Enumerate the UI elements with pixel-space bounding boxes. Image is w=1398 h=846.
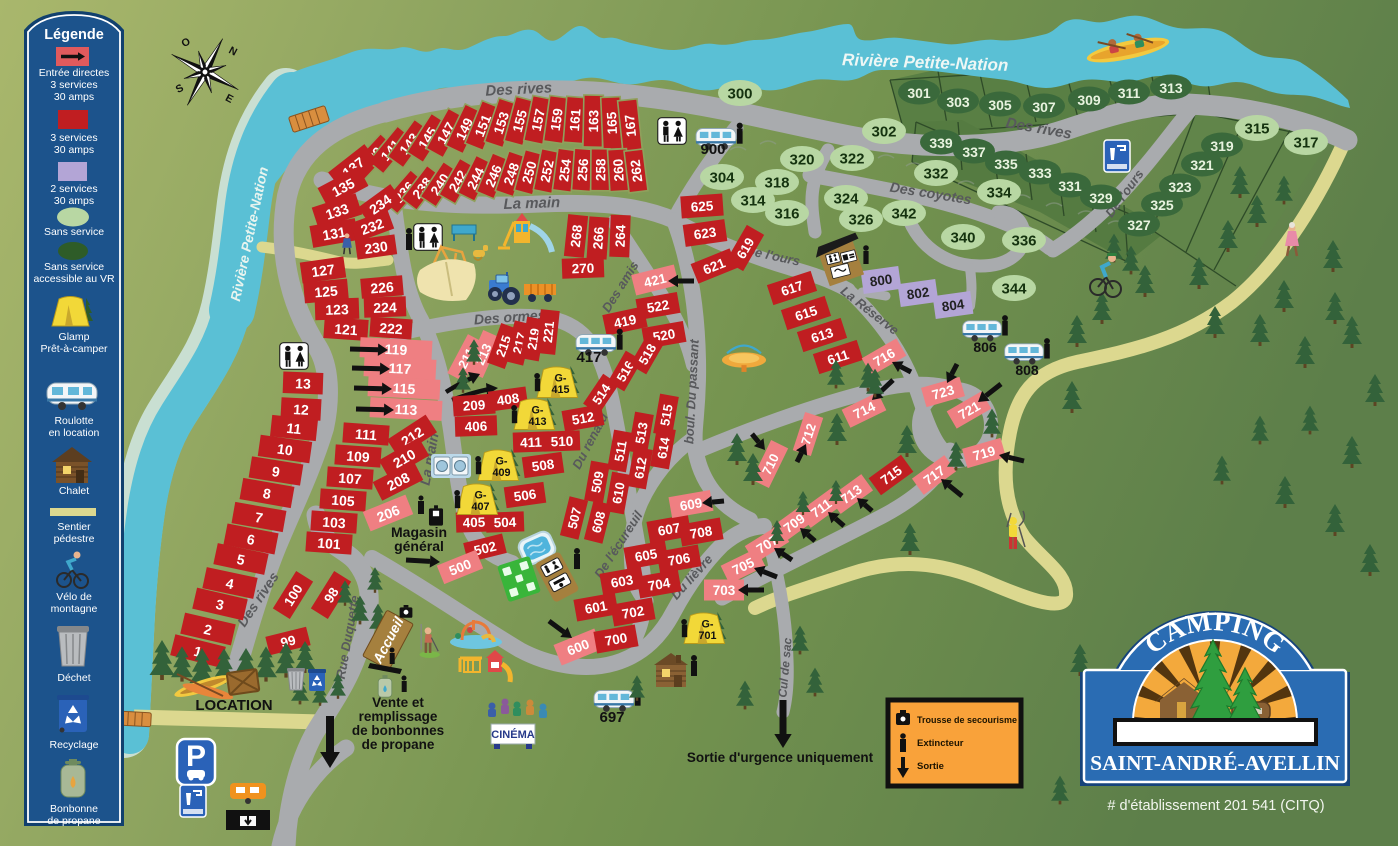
svg-text:322: 322 bbox=[839, 151, 864, 168]
svg-text:Trousse de secourisme: Trousse de secourisme bbox=[917, 715, 1017, 725]
svg-text:2 services: 2 services bbox=[50, 183, 97, 195]
svg-text:30 amps: 30 amps bbox=[54, 195, 94, 207]
svg-text:226: 226 bbox=[370, 278, 395, 296]
svg-text:317: 317 bbox=[1293, 135, 1318, 152]
svg-text:340: 340 bbox=[950, 230, 975, 247]
svg-text:806: 806 bbox=[973, 339, 997, 355]
svg-text:165: 165 bbox=[604, 111, 620, 135]
svg-text:311: 311 bbox=[1118, 85, 1141, 101]
svg-text:802: 802 bbox=[906, 285, 930, 303]
svg-text:G-: G- bbox=[475, 489, 487, 501]
svg-text:30 amps: 30 amps bbox=[54, 91, 94, 103]
svg-text:Glamp: Glamp bbox=[59, 331, 90, 343]
svg-text:13: 13 bbox=[295, 375, 311, 392]
svg-text:266: 266 bbox=[590, 226, 607, 250]
svg-text:302: 302 bbox=[871, 124, 896, 141]
svg-text:508: 508 bbox=[531, 456, 556, 474]
svg-text:Sentier: Sentier bbox=[57, 521, 91, 533]
svg-text:117: 117 bbox=[388, 360, 412, 377]
svg-text:119: 119 bbox=[384, 341, 408, 358]
svg-text:101: 101 bbox=[317, 535, 342, 553]
svg-text:314: 314 bbox=[740, 193, 766, 210]
svg-text:697: 697 bbox=[599, 709, 624, 726]
svg-text:105: 105 bbox=[331, 492, 356, 510]
svg-text:de propane: de propane bbox=[362, 737, 435, 752]
svg-text:209: 209 bbox=[462, 397, 486, 414]
svg-text:accessible au VR: accessible au VR bbox=[33, 273, 115, 285]
svg-text:417: 417 bbox=[576, 349, 601, 366]
svg-text:159: 159 bbox=[548, 107, 566, 131]
svg-text:336: 336 bbox=[1011, 233, 1036, 250]
svg-text:161: 161 bbox=[567, 108, 584, 132]
svg-text:264: 264 bbox=[613, 224, 629, 248]
svg-text:325: 325 bbox=[1150, 197, 1174, 213]
svg-text:313: 313 bbox=[1159, 80, 1183, 96]
svg-text:# d'établissement 201 541 (CIT: # d'établissement 201 541 (CITQ) bbox=[1107, 798, 1324, 814]
svg-text:319: 319 bbox=[1210, 138, 1234, 154]
svg-text:327: 327 bbox=[1127, 217, 1151, 233]
svg-text:pédestre: pédestre bbox=[54, 533, 95, 545]
svg-text:3 services: 3 services bbox=[50, 79, 97, 91]
svg-text:318: 318 bbox=[764, 175, 789, 192]
svg-text:10: 10 bbox=[276, 440, 294, 458]
svg-text:125: 125 bbox=[314, 282, 339, 300]
svg-text:123: 123 bbox=[325, 301, 349, 318]
svg-text:Sans service: Sans service bbox=[44, 261, 104, 273]
svg-text:333: 333 bbox=[1028, 165, 1052, 181]
svg-text:337: 337 bbox=[962, 144, 986, 160]
svg-text:303: 303 bbox=[946, 94, 970, 110]
svg-text:en location: en location bbox=[49, 427, 100, 439]
svg-text:305: 305 bbox=[988, 97, 1012, 113]
svg-text:323: 323 bbox=[1168, 179, 1192, 195]
svg-text:G-: G- bbox=[532, 404, 544, 416]
svg-text:316: 316 bbox=[774, 206, 799, 223]
svg-text:321: 321 bbox=[1190, 157, 1214, 173]
svg-text:415: 415 bbox=[551, 384, 569, 396]
svg-text:Sans service: Sans service bbox=[44, 226, 104, 238]
svg-text:254: 254 bbox=[556, 158, 574, 183]
svg-text:121: 121 bbox=[334, 321, 359, 339]
svg-text:P: P bbox=[186, 740, 206, 773]
svg-text:remplissage: remplissage bbox=[359, 709, 438, 724]
svg-text:256: 256 bbox=[575, 158, 592, 182]
svg-text:300: 300 bbox=[727, 86, 752, 103]
svg-text:107: 107 bbox=[338, 470, 363, 488]
svg-text:406: 406 bbox=[464, 419, 488, 435]
svg-text:Vélo de: Vélo de bbox=[56, 591, 92, 603]
svg-text:CINÉMA: CINÉMA bbox=[491, 728, 534, 741]
svg-text:332: 332 bbox=[923, 166, 948, 183]
svg-text:270: 270 bbox=[571, 261, 594, 277]
svg-text:309: 309 bbox=[1077, 92, 1101, 108]
svg-text:115: 115 bbox=[392, 380, 416, 397]
svg-text:900: 900 bbox=[700, 141, 725, 158]
svg-text:260: 260 bbox=[611, 158, 627, 181]
svg-text:315: 315 bbox=[1244, 121, 1269, 138]
svg-text:G-: G- bbox=[702, 618, 714, 630]
svg-text:307: 307 bbox=[1032, 99, 1056, 115]
svg-text:504: 504 bbox=[493, 515, 517, 531]
svg-text:Prêt-à-camper: Prêt-à-camper bbox=[40, 343, 108, 355]
svg-text:de propane: de propane bbox=[47, 815, 100, 827]
svg-text:405: 405 bbox=[462, 515, 486, 531]
svg-text:331: 331 bbox=[1058, 178, 1082, 194]
svg-text:de bonbonnes: de bonbonnes bbox=[352, 723, 444, 738]
svg-text:127: 127 bbox=[310, 261, 336, 280]
svg-text:167: 167 bbox=[622, 114, 639, 138]
svg-text:409: 409 bbox=[492, 467, 510, 479]
svg-text:12: 12 bbox=[293, 401, 310, 418]
svg-text:701: 701 bbox=[698, 630, 716, 642]
svg-text:163: 163 bbox=[586, 109, 601, 132]
svg-text:262: 262 bbox=[628, 159, 646, 183]
svg-text:411: 411 bbox=[520, 435, 543, 451]
svg-text:230: 230 bbox=[363, 238, 389, 257]
svg-text:808: 808 bbox=[1015, 362, 1039, 378]
svg-text:Déchet: Déchet bbox=[57, 672, 90, 684]
svg-text:30 amps: 30 amps bbox=[54, 144, 94, 156]
svg-text:304: 304 bbox=[709, 170, 735, 187]
svg-text:11: 11 bbox=[286, 420, 303, 437]
svg-text:113: 113 bbox=[394, 401, 418, 418]
svg-text:Bonbonne: Bonbonne bbox=[50, 803, 98, 815]
svg-text:342: 342 bbox=[891, 206, 916, 223]
svg-text:320: 320 bbox=[789, 152, 814, 169]
svg-text:Sortie d'urgence uniquement: Sortie d'urgence uniquement bbox=[687, 750, 874, 765]
svg-text:Recyclage: Recyclage bbox=[49, 739, 98, 751]
svg-text:général: général bbox=[394, 538, 444, 554]
svg-text:301: 301 bbox=[907, 85, 931, 101]
svg-text:G-: G- bbox=[555, 372, 567, 384]
svg-text:Légende: Légende bbox=[44, 27, 104, 43]
svg-text:408: 408 bbox=[496, 390, 521, 408]
svg-text:montagne: montagne bbox=[51, 603, 98, 615]
svg-text:SAINT-ANDRÉ-AVELLIN: SAINT-ANDRÉ-AVELLIN bbox=[1090, 751, 1340, 775]
svg-text:703: 703 bbox=[713, 583, 736, 598]
svg-text:109: 109 bbox=[346, 448, 371, 466]
svg-text:Extincteur: Extincteur bbox=[917, 738, 964, 749]
svg-text:413: 413 bbox=[528, 416, 546, 428]
svg-text:335: 335 bbox=[994, 156, 1018, 172]
svg-text:Chalet: Chalet bbox=[59, 485, 89, 497]
svg-text:407: 407 bbox=[471, 501, 489, 513]
svg-text:224: 224 bbox=[373, 299, 397, 316]
svg-text:258: 258 bbox=[593, 158, 608, 181]
svg-text:623: 623 bbox=[693, 224, 718, 242]
svg-text:344: 344 bbox=[1001, 281, 1027, 298]
svg-text:221: 221 bbox=[540, 320, 557, 343]
svg-text:334: 334 bbox=[986, 185, 1012, 202]
svg-text:222: 222 bbox=[379, 320, 404, 338]
svg-text:326: 326 bbox=[848, 212, 873, 229]
svg-text:Entrée directes: Entrée directes bbox=[39, 67, 110, 79]
svg-text:804: 804 bbox=[941, 296, 966, 314]
svg-text:506: 506 bbox=[513, 486, 538, 504]
svg-text:324: 324 bbox=[833, 191, 859, 208]
svg-text:Sortie: Sortie bbox=[917, 761, 944, 772]
svg-text:800: 800 bbox=[869, 272, 893, 290]
svg-text:111: 111 bbox=[355, 426, 378, 443]
svg-text:G-: G- bbox=[496, 455, 508, 467]
svg-text:3 services: 3 services bbox=[50, 132, 97, 144]
svg-text:339: 339 bbox=[929, 135, 953, 151]
svg-text:268: 268 bbox=[568, 224, 585, 248]
svg-text:103: 103 bbox=[322, 514, 347, 532]
svg-text:625: 625 bbox=[690, 198, 714, 215]
svg-text:510: 510 bbox=[550, 434, 573, 450]
svg-text:LOCATION: LOCATION bbox=[195, 697, 272, 714]
svg-text:329: 329 bbox=[1089, 190, 1113, 206]
svg-text:Roulotte: Roulotte bbox=[54, 415, 93, 427]
